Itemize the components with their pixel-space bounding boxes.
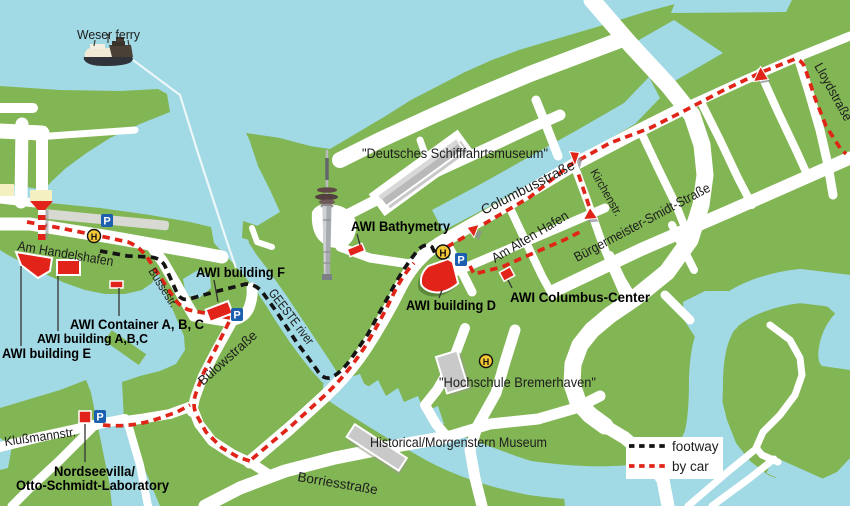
svg-text:AWI building F: AWI building F (196, 265, 285, 280)
svg-text:Otto-Schmidt-Laboratory: Otto-Schmidt-Laboratory (16, 478, 169, 493)
svg-text:H: H (439, 249, 446, 260)
svg-text:by car: by car (672, 459, 709, 474)
svg-text:"Deutsches Schifffahrtsmuseum": "Deutsches Schifffahrtsmuseum" (362, 146, 548, 161)
svg-text:Historical/Morgenstern Museum: Historical/Morgenstern Museum (370, 435, 547, 450)
svg-text:H: H (483, 357, 490, 367)
svg-text:AWI building E: AWI building E (2, 346, 91, 361)
svg-text:footway: footway (672, 439, 719, 454)
svg-text:AWI Bathymetry: AWI Bathymetry (351, 218, 450, 234)
svg-text:P: P (457, 255, 464, 267)
svg-text:Weser ferry: Weser ferry (77, 27, 140, 42)
svg-text:Nordseevilla/: Nordseevilla/ (54, 464, 135, 479)
svg-text:"Hochschule Bremerhaven": "Hochschule Bremerhaven" (439, 374, 596, 390)
svg-text:P: P (233, 310, 240, 322)
svg-text:AWI building D: AWI building D (406, 298, 496, 313)
svg-text:AWI Columbus-Center: AWI Columbus-Center (510, 289, 651, 305)
svg-text:P: P (96, 412, 103, 424)
svg-text:P: P (103, 216, 110, 228)
svg-text:AWI Container A, B, C: AWI Container A, B, C (70, 317, 204, 332)
svg-text:H: H (91, 232, 98, 242)
svg-text:AWI building A,B,C: AWI building A,B,C (37, 331, 149, 346)
